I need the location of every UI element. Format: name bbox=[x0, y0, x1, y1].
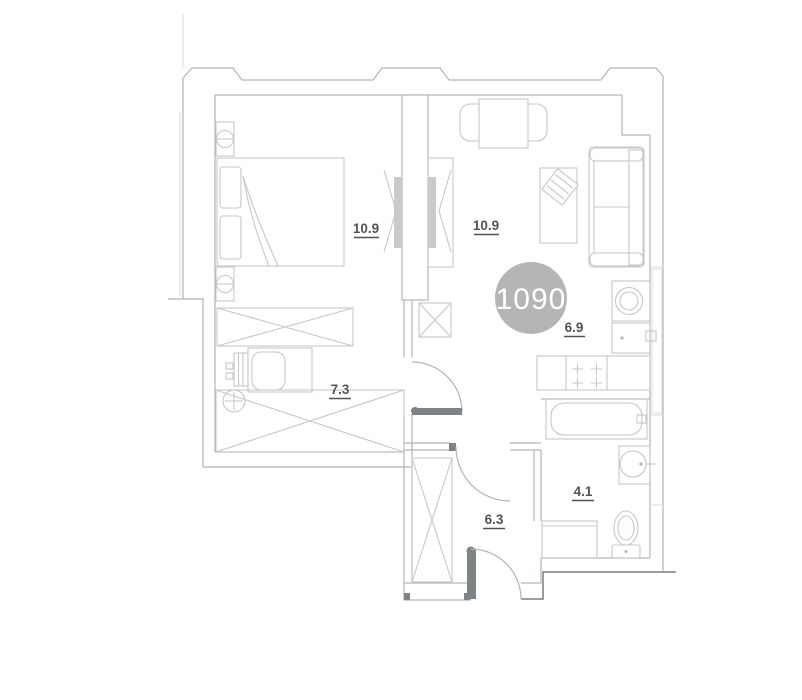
unit-badge[interactable]: 1090 bbox=[495, 262, 567, 334]
desk-chair bbox=[252, 352, 285, 390]
door-swing-arc bbox=[456, 447, 510, 501]
room-label-kitchen: 6.9 bbox=[565, 320, 584, 335]
door-leaf bbox=[412, 408, 462, 415]
radiator-fins bbox=[239, 353, 244, 386]
sofa bbox=[589, 147, 644, 267]
room-label-hallway: 6.3 bbox=[485, 512, 504, 527]
living-room-furniture bbox=[460, 99, 644, 267]
door-hinge bbox=[411, 407, 419, 415]
wall-step bbox=[521, 558, 541, 583]
bed bbox=[217, 158, 344, 266]
pilaster bbox=[373, 68, 449, 80]
wall-line bbox=[510, 443, 541, 450]
wall-cap bbox=[404, 593, 410, 600]
bath-sink-drain bbox=[639, 462, 642, 465]
floor-lamp-cross bbox=[225, 392, 243, 410]
toilet-button bbox=[625, 550, 628, 553]
dining-table bbox=[479, 99, 528, 148]
bathtub-outer bbox=[546, 399, 647, 439]
toilet-bowl-inner bbox=[618, 516, 634, 540]
vent-shaft-cross bbox=[419, 303, 451, 337]
walls bbox=[168, 14, 676, 600]
door-hinge bbox=[467, 547, 476, 556]
kitchen-sink-cabinet bbox=[612, 281, 650, 321]
door-swing-arc bbox=[471, 549, 521, 599]
wardrobe bbox=[217, 308, 353, 346]
door-leaf bbox=[467, 549, 476, 599]
stove-burners bbox=[572, 364, 602, 389]
wall-dark-line bbox=[521, 572, 676, 599]
room-label-study: 7.3 bbox=[331, 382, 350, 397]
entrance-door bbox=[467, 547, 522, 600]
partition-wall bbox=[402, 95, 428, 300]
radiator bbox=[234, 353, 248, 386]
room-label-bathroom: 4.1 bbox=[574, 484, 593, 499]
room-label-living-room: 10.9 bbox=[473, 218, 499, 233]
wall-line bbox=[404, 300, 412, 357]
wall-line bbox=[403, 443, 450, 450]
stove-edges bbox=[566, 356, 607, 390]
kitchen-counter-row bbox=[537, 356, 650, 390]
door-jamb bbox=[449, 443, 456, 451]
bath-sink-cabinet bbox=[619, 446, 650, 484]
hallway-furniture bbox=[412, 458, 452, 582]
doors bbox=[411, 362, 521, 599]
pilaster bbox=[601, 68, 663, 80]
room-labels: 10.9 10.9 6.9 7.3 6.3 4.1 bbox=[329, 218, 594, 529]
bathroom-door bbox=[449, 443, 510, 501]
wall-band bbox=[404, 583, 470, 600]
kitchen-sink-icon-inner bbox=[620, 292, 638, 310]
floor-plan: 1090 10.9 10.9 6.9 7.3 6.3 4.1 bbox=[0, 0, 802, 700]
wardrobe-cross bbox=[217, 308, 353, 346]
wall-line bbox=[534, 450, 541, 521]
wardrobe-cross bbox=[216, 390, 404, 452]
wardrobe bbox=[216, 390, 404, 452]
socket-icon bbox=[226, 373, 233, 379]
bathtub-inner bbox=[551, 403, 642, 435]
pilaster bbox=[183, 68, 242, 80]
faucet-icon bbox=[646, 331, 656, 341]
room-label-bedroom: 10.9 bbox=[353, 221, 379, 236]
kitchen-counter bbox=[612, 323, 650, 353]
tv-angle-icon bbox=[439, 170, 451, 252]
vent-shaft bbox=[419, 303, 451, 337]
tv-icon bbox=[428, 177, 436, 248]
wall-line bbox=[404, 415, 412, 583]
socket-icon bbox=[226, 363, 233, 369]
study-furniture bbox=[216, 308, 404, 452]
toilet bbox=[612, 511, 640, 558]
door-swing-arc bbox=[412, 362, 462, 412]
study-door bbox=[411, 362, 462, 415]
hall-wardrobe-cross bbox=[412, 458, 452, 582]
bedroom-furniture bbox=[216, 122, 344, 301]
counter-dot bbox=[620, 336, 623, 339]
bathroom-fixtures bbox=[542, 399, 656, 558]
wall-corner bbox=[622, 95, 650, 135]
floor-plan-page: 1090 10.9 10.9 6.9 7.3 6.3 4.1 bbox=[0, 0, 802, 700]
unit-badge-number[interactable]: 1090 bbox=[496, 283, 567, 316]
